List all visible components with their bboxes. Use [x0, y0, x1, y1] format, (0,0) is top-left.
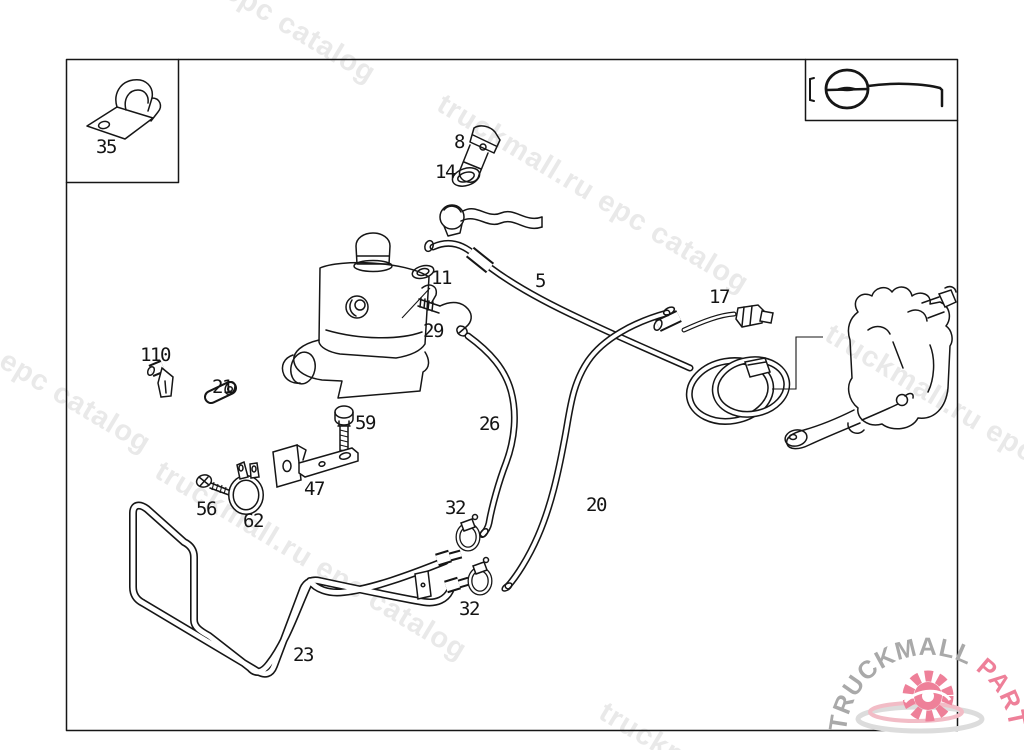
screw-56	[195, 473, 233, 496]
part-label-56[interactable]: 56	[196, 498, 216, 520]
epc-diagram-page: truckmall.ru epc catalog truckmall.ru ep…	[0, 0, 1024, 750]
part-label-17[interactable]: 17	[709, 286, 729, 308]
part-label-23[interactable]: 23	[293, 644, 313, 666]
clip-110	[146, 366, 173, 397]
part-label-35[interactable]: 35	[96, 136, 116, 158]
steering-wheel-icon	[810, 70, 942, 108]
part-label-110[interactable]: 110	[140, 344, 170, 366]
pipe-clamp-35-drawing	[87, 80, 160, 139]
leader-line	[402, 288, 430, 318]
part-label-8[interactable]: 8	[454, 131, 464, 153]
part-label-26[interactable]: 26	[479, 413, 499, 435]
part-label-11[interactable]: 11	[431, 267, 451, 289]
hose-26	[468, 336, 514, 539]
steering-gear	[848, 287, 956, 429]
part-label-59[interactable]: 59	[355, 412, 375, 434]
part-label-5[interactable]: 5	[535, 270, 545, 292]
part-label-47[interactable]: 47	[304, 478, 324, 500]
clamp-62	[231, 462, 261, 512]
part-label-21[interactable]: 21	[212, 376, 232, 398]
cooler-pipe-23	[133, 506, 450, 674]
diagram-line-art: TRUCKMALL PARTS	[0, 0, 1024, 750]
pump-assembly	[282, 233, 436, 398]
banjo-hose-fitting	[440, 205, 542, 236]
hose-clamp-32-upper	[458, 515, 478, 550]
part-label-32[interactable]: 32	[459, 598, 479, 620]
pipe-17	[653, 305, 773, 331]
inset-box-clamp	[67, 60, 179, 183]
part-label-62[interactable]: 62	[243, 510, 263, 532]
return-hose-fittings	[415, 554, 469, 599]
part-label-14[interactable]: 14	[435, 161, 455, 183]
gear-icon	[905, 676, 950, 716]
part-label-20[interactable]: 20	[586, 494, 606, 516]
pressure-hose-5	[423, 239, 690, 368]
hose-loop	[684, 337, 823, 428]
hose-clamp-32-lower	[470, 558, 490, 594]
pitman-arm	[784, 394, 914, 449]
part-label-32[interactable]: 32	[445, 497, 465, 519]
part-label-29[interactable]: 29	[423, 320, 443, 342]
leader-bracket	[772, 337, 823, 389]
bolt-59	[335, 406, 353, 453]
